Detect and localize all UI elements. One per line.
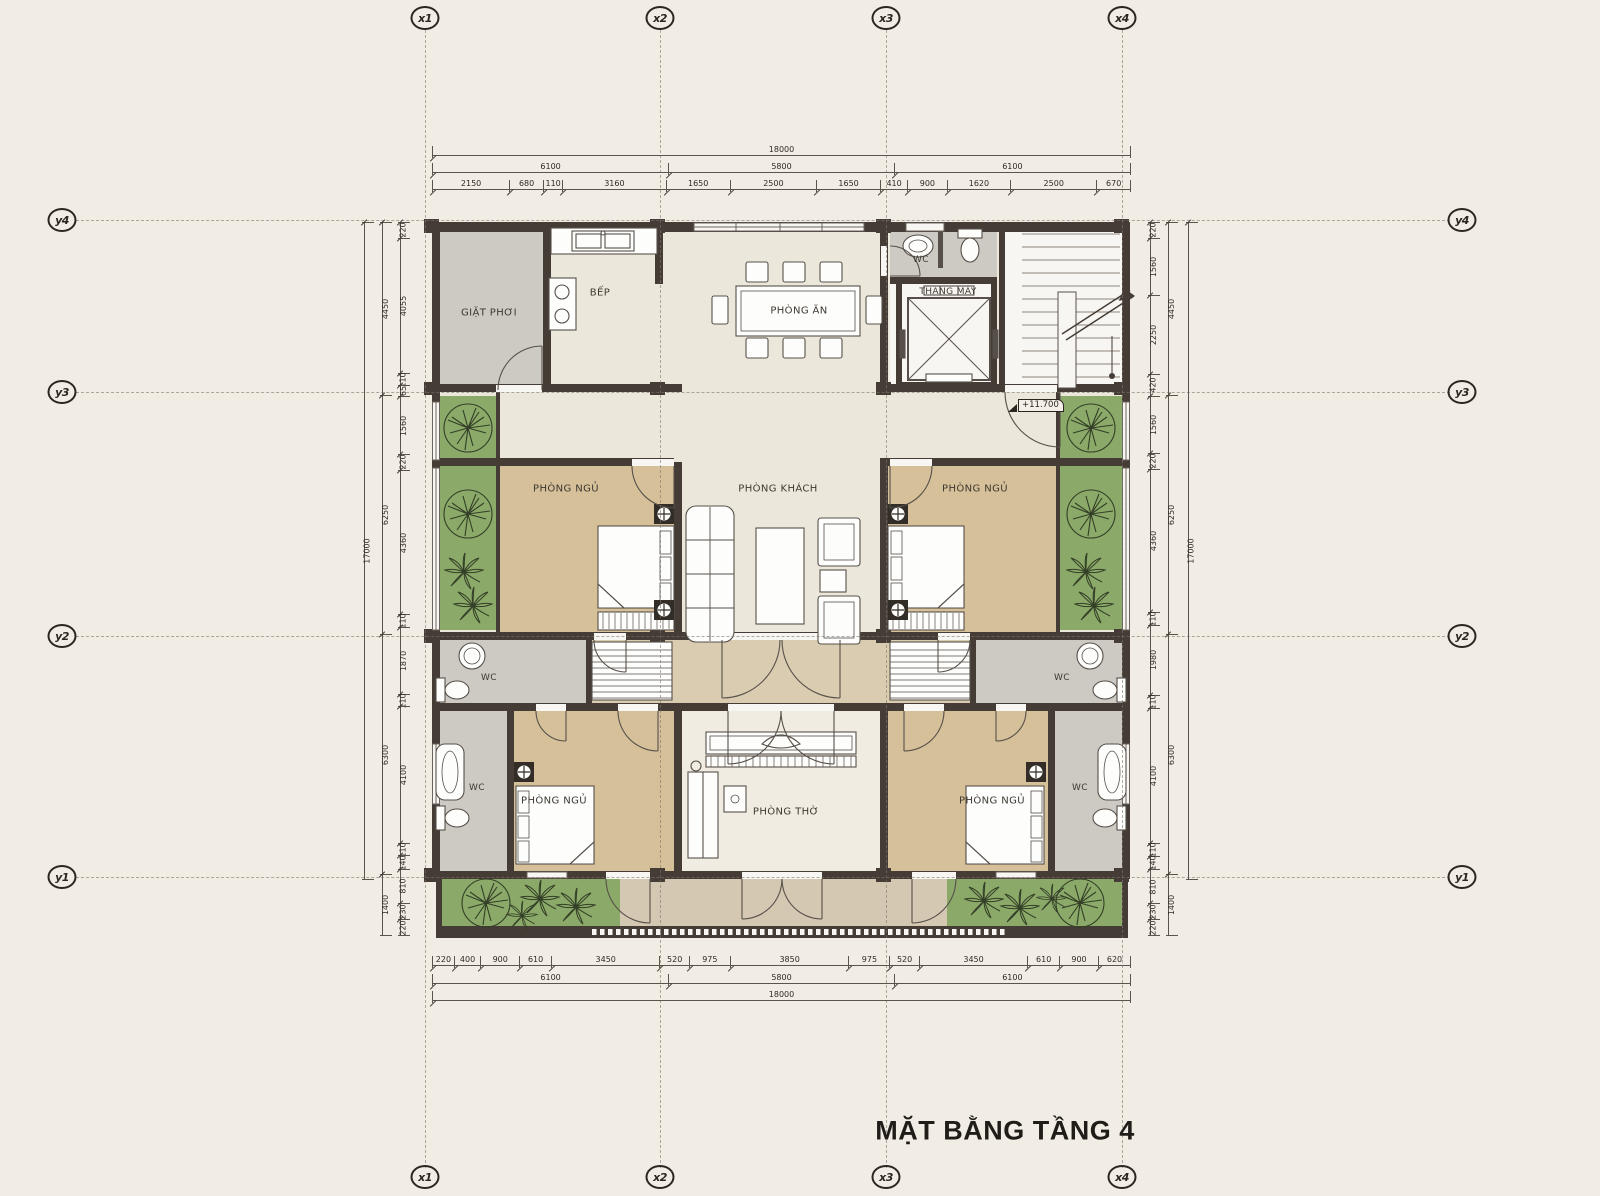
- room-label-bedroom-bottom-left: PHÒNG NGỦ: [521, 796, 587, 807]
- dim-value: 18000: [769, 146, 794, 154]
- dim-value: 6100: [540, 163, 560, 171]
- level-value: +11.700: [1018, 399, 1064, 412]
- dim-right-total: 17000: [1186, 222, 1198, 880]
- dim-value: 17000: [364, 538, 372, 563]
- dim-segment: 900: [1059, 956, 1098, 968]
- dim-segment: 17000: [362, 222, 374, 879]
- dim-segment: 6300: [380, 634, 392, 875]
- dim-value: 17000: [1188, 538, 1196, 563]
- dim-value: 975: [862, 956, 877, 964]
- floor-plan-page: x1 x2 x3 x4 x1 x2 x3 x4 y4 y3 y2 y1 y4 y…: [0, 0, 1600, 1196]
- dim-segment: 6100: [432, 163, 668, 175]
- dim-segment: 975: [848, 956, 889, 968]
- dim-segment: 220: [398, 919, 410, 935]
- axis-bubble-y3-left: y3: [48, 380, 77, 404]
- room-label-elevator: THANG MÁY: [919, 287, 976, 297]
- dim-segment: 1620: [947, 180, 1010, 192]
- axis-bubble-x2-bottom: x2: [646, 1165, 675, 1189]
- dim-value: 410: [886, 180, 901, 188]
- dim-top-detail: 2150680110316016502500165041090016202500…: [432, 180, 1131, 192]
- room-label-bedroom-mid-right: PHÒNG NGỦ: [942, 484, 1008, 495]
- level-marker: +11.700: [1008, 399, 1064, 412]
- dim-segment: 520: [889, 956, 918, 968]
- room-label-wc-right-upper: WC: [1054, 673, 1070, 683]
- dim-bottom-total: 18000: [432, 991, 1131, 1003]
- dim-segment: 670: [1096, 180, 1130, 192]
- dim-segment: 680: [509, 180, 543, 192]
- dim-segment: 900: [480, 956, 519, 968]
- dim-left-detail: 2204055110651560220436011018701104100110…: [398, 222, 410, 936]
- room-label-wc-left-upper: WC: [481, 673, 497, 683]
- dim-value: 3850: [779, 956, 799, 964]
- dim-segment: 110: [1148, 843, 1160, 855]
- dim-segment: 410: [880, 180, 907, 192]
- dim-value: 5800: [771, 974, 791, 982]
- dim-value: 1560: [1150, 415, 1158, 435]
- dim-value: 4360: [1150, 531, 1158, 551]
- dim-value: 1560: [400, 416, 408, 436]
- dim-segment: 220: [432, 956, 454, 968]
- dim-value: 110: [546, 180, 561, 188]
- dim-value: 1400: [1168, 895, 1176, 915]
- dim-segment: 1560: [1148, 396, 1160, 453]
- dim-value: 6100: [1002, 163, 1022, 171]
- axis-bubble-y1-left: y1: [48, 865, 77, 889]
- dim-value: 3160: [604, 180, 624, 188]
- axis-bubble-x4-top: x4: [1108, 6, 1137, 30]
- dim-value: 520: [897, 956, 912, 964]
- dim-value: 6250: [382, 505, 390, 525]
- dim-segment: 220: [398, 454, 410, 470]
- dim-value: 900: [1071, 956, 1086, 964]
- dim-value: 1400: [382, 895, 390, 915]
- dim-segment: 220: [1148, 919, 1160, 935]
- dim-value: 4450: [1168, 299, 1176, 319]
- dim-segment: 6250: [1166, 395, 1178, 634]
- dim-segment: 110: [1148, 695, 1160, 707]
- dim-segment: 6300: [1166, 634, 1178, 875]
- page-title: MẶT BẰNG TẦNG 4: [875, 1116, 1135, 1147]
- dim-value: 4100: [400, 765, 408, 785]
- room-label-laundry: GIẶT PHƠI: [461, 308, 517, 319]
- dim-value: 4450: [382, 299, 390, 319]
- dim-value: 975: [702, 956, 717, 964]
- dim-segment: 5800: [668, 163, 894, 175]
- room-label-worship: PHÒNG THỜ: [753, 807, 819, 818]
- axis-bubble-y2-left: y2: [48, 624, 77, 648]
- dim-value: 680: [519, 180, 534, 188]
- dim-segment: 230: [1148, 903, 1160, 919]
- dim-right-outer: 4450625063001400: [1166, 222, 1178, 936]
- dim-segment: 3160: [562, 180, 665, 192]
- axis-bubble-x3-top: x3: [872, 6, 901, 30]
- dim-value: 6300: [1168, 744, 1176, 764]
- dim-segment: 6100: [894, 163, 1130, 175]
- dim-segment: 520: [659, 956, 688, 968]
- dim-value: 18000: [769, 991, 794, 999]
- dim-segment: 1400: [380, 874, 392, 935]
- dim-value: 810: [400, 879, 408, 894]
- dim-segment: 420: [1148, 374, 1160, 396]
- dim-value: 620: [1107, 956, 1122, 964]
- dim-value: 810: [1150, 879, 1158, 894]
- dim-segment: 1650: [816, 180, 880, 192]
- dim-segment: 2250: [1148, 295, 1160, 374]
- dim-segment: 18000: [432, 991, 1130, 1003]
- room-label-wc-left-lower: WC: [469, 783, 485, 793]
- dim-segment: 610: [519, 956, 551, 968]
- dim-segment: 4360: [398, 470, 410, 615]
- dim-left-outer: 4450625063001400: [380, 222, 392, 936]
- axis-bubble-x1-bottom: x1: [411, 1165, 440, 1189]
- room-label-kitchen: BẾP: [590, 288, 610, 299]
- dim-segment: 4055: [398, 238, 410, 373]
- room-label-wc-top: WC: [913, 255, 929, 265]
- room-label-bedroom-bottom-right: PHÒNG NGỦ: [959, 796, 1025, 807]
- dim-value: 6300: [382, 744, 390, 764]
- axis-bubble-x2-top: x2: [646, 6, 675, 30]
- dim-value: 1870: [400, 651, 408, 671]
- dim-segment: 1560: [398, 396, 410, 454]
- dim-value: 400: [460, 956, 475, 964]
- dim-segment: 610: [1027, 956, 1059, 968]
- dim-segment: 900: [907, 180, 947, 192]
- dim-value: 6250: [1168, 505, 1176, 525]
- room-label-wc-right-lower: WC: [1072, 783, 1088, 793]
- dim-segment: 3850: [730, 956, 849, 968]
- dim-value: 5800: [771, 163, 791, 171]
- dim-segment: 1400: [1166, 874, 1178, 935]
- dim-segment: 975: [689, 956, 730, 968]
- dim-segment: 4100: [1148, 708, 1160, 844]
- dim-segment: 2500: [1010, 180, 1096, 192]
- dim-segment: 17000: [1186, 222, 1198, 879]
- dim-segment: 4450: [380, 222, 392, 395]
- dim-value: 610: [1036, 956, 1051, 964]
- dim-segment: 220: [1148, 222, 1160, 238]
- dim-right-detail: 2201560225042015602204360110198011041001…: [1148, 222, 1160, 936]
- dim-segment: 1560: [1148, 238, 1160, 295]
- dim-left-total: 17000: [362, 222, 374, 880]
- dim-top-total: 18000: [432, 146, 1131, 158]
- dim-value: 900: [920, 180, 935, 188]
- dim-segment: 18000: [432, 146, 1130, 158]
- dim-value: 1980: [1150, 650, 1158, 670]
- dim-value: 670: [1106, 180, 1121, 188]
- dim-value: 610: [528, 956, 543, 964]
- axis-bubble-y2-right: y2: [1448, 624, 1477, 648]
- dim-segment: 400: [454, 956, 480, 968]
- dim-value: 2250: [1150, 325, 1158, 345]
- dim-value: 2500: [763, 180, 783, 188]
- dim-segment: 810: [398, 869, 410, 903]
- axis-bubble-x3-bottom: x3: [872, 1165, 901, 1189]
- dim-segment: 3450: [551, 956, 660, 968]
- dim-value: 3450: [596, 956, 616, 964]
- dim-value: 1650: [838, 180, 858, 188]
- dim-segment: 140: [398, 855, 410, 868]
- dim-segment: 110: [1148, 612, 1160, 624]
- dim-segment: 2500: [730, 180, 816, 192]
- dim-segment: 230: [398, 903, 410, 919]
- dim-value: 6100: [540, 974, 560, 982]
- dim-segment: 110: [543, 180, 562, 192]
- dim-bottom-detail: 2204009006103450520975385097552034506109…: [432, 956, 1131, 968]
- dim-value: 4055: [400, 296, 408, 316]
- dim-value: 1620: [969, 180, 989, 188]
- dim-value: 520: [667, 956, 682, 964]
- dim-segment: 4360: [1148, 469, 1160, 613]
- room-label-bedroom-mid-left: PHÒNG NGỦ: [533, 484, 599, 495]
- dim-segment: 810: [1148, 869, 1160, 903]
- axis-bubble-x4-bottom: x4: [1108, 1165, 1137, 1189]
- level-flag-icon: [1008, 404, 1017, 412]
- dim-segment: 6250: [380, 395, 392, 634]
- dim-value: 4360: [400, 532, 408, 552]
- dim-segment: 220: [398, 222, 410, 238]
- axis-bubble-y3-right: y3: [1448, 380, 1477, 404]
- dim-top-mid: 610058006100: [432, 163, 1131, 175]
- dim-value: 220: [1150, 920, 1158, 935]
- dim-value: 2150: [461, 180, 481, 188]
- axis-bubble-y1-right: y1: [1448, 865, 1477, 889]
- dim-value: 900: [493, 956, 508, 964]
- dim-segment: 1650: [666, 180, 730, 192]
- dim-segment: 4450: [1166, 222, 1178, 395]
- dim-segment: 220: [1148, 453, 1160, 469]
- dim-value: 420: [1150, 377, 1158, 392]
- dim-segment: 1980: [1148, 625, 1160, 695]
- dim-value: 4100: [1150, 766, 1158, 786]
- dim-segment: 6100: [432, 974, 668, 986]
- dim-value: 2500: [1044, 180, 1064, 188]
- dim-value: 1650: [688, 180, 708, 188]
- dim-value: 1560: [1150, 257, 1158, 277]
- room-label-living: PHÒNG KHÁCH: [738, 484, 817, 495]
- dim-segment: 620: [1098, 956, 1130, 968]
- dim-value: 3450: [963, 956, 983, 964]
- dim-segment: 4100: [398, 706, 410, 843]
- dim-segment: 1870: [398, 627, 410, 694]
- axis-bubble-y4-right: y4: [1448, 208, 1477, 232]
- dim-bottom-mid: 610058006100: [432, 974, 1131, 986]
- axis-bubble-y4-left: y4: [48, 208, 77, 232]
- dim-segment: 3450: [919, 956, 1028, 968]
- dim-value: 220: [400, 920, 408, 935]
- room-label-dining: PHÒNG ĂN: [770, 306, 827, 317]
- axis-bubble-x1-top: x1: [411, 6, 440, 30]
- dim-value: 6100: [1002, 974, 1022, 982]
- dim-segment: 5800: [668, 974, 894, 986]
- dim-segment: 2150: [432, 180, 509, 192]
- dim-segment: 6100: [894, 974, 1130, 986]
- dim-value: 220: [436, 956, 451, 964]
